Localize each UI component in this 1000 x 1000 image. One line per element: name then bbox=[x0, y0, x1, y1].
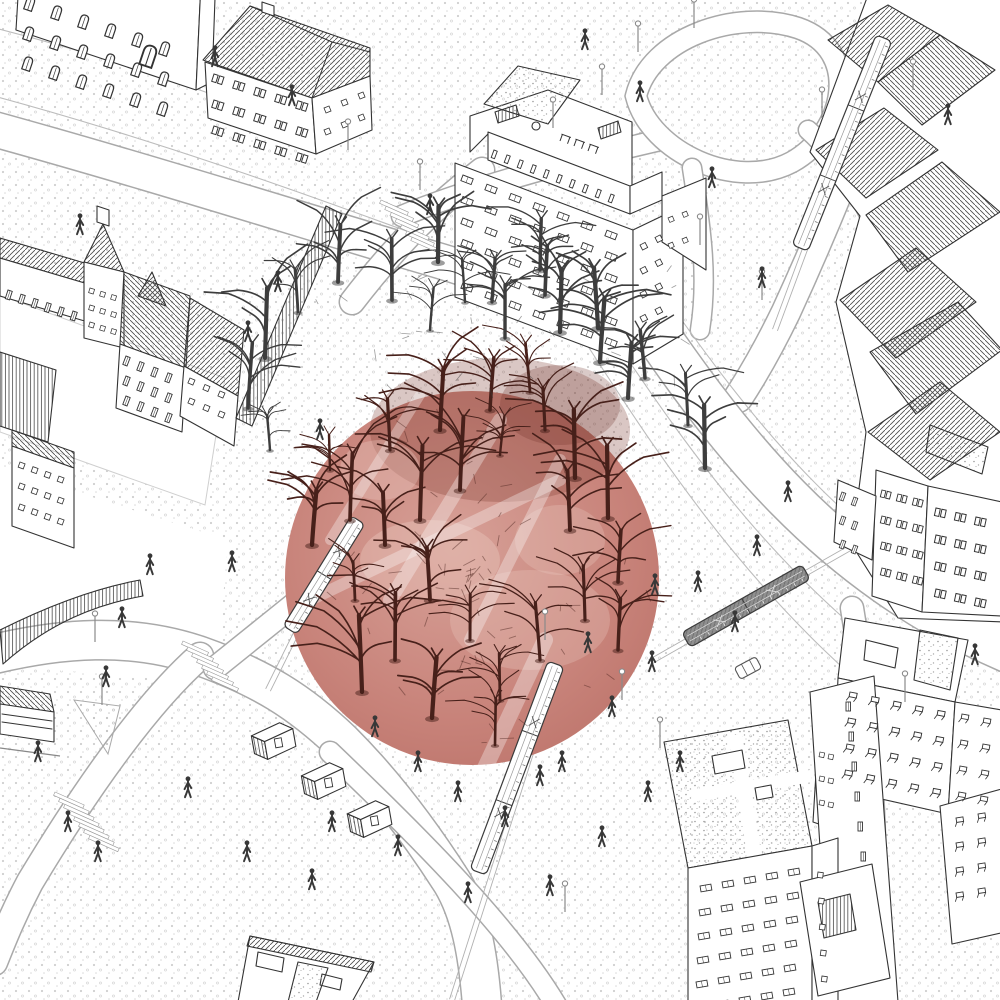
window bbox=[861, 852, 866, 861]
window bbox=[828, 802, 834, 808]
window bbox=[718, 976, 730, 984]
window bbox=[31, 467, 38, 474]
window bbox=[821, 976, 827, 982]
window bbox=[787, 892, 799, 900]
window bbox=[785, 940, 797, 948]
window bbox=[765, 896, 777, 904]
window bbox=[111, 312, 117, 318]
window bbox=[57, 497, 64, 504]
city-illustration: Hand-drawn axonometric city illustration… bbox=[0, 0, 1000, 1000]
window bbox=[819, 752, 825, 758]
window bbox=[742, 924, 754, 932]
window bbox=[743, 900, 755, 908]
window bbox=[111, 295, 117, 301]
window bbox=[697, 956, 709, 964]
window bbox=[819, 924, 825, 930]
window bbox=[699, 908, 711, 916]
window bbox=[744, 876, 756, 884]
window bbox=[57, 518, 64, 525]
window bbox=[722, 880, 734, 888]
window bbox=[696, 980, 708, 988]
window bbox=[720, 928, 732, 936]
window bbox=[31, 488, 38, 495]
window bbox=[820, 950, 826, 956]
window bbox=[764, 920, 776, 928]
window bbox=[828, 754, 834, 760]
window bbox=[18, 504, 25, 511]
window bbox=[763, 944, 775, 952]
window bbox=[31, 509, 38, 516]
window bbox=[783, 988, 795, 996]
window bbox=[57, 476, 64, 483]
window bbox=[762, 968, 774, 976]
window bbox=[100, 325, 106, 331]
window bbox=[784, 964, 796, 972]
window bbox=[788, 868, 800, 876]
window bbox=[700, 884, 712, 892]
window bbox=[89, 322, 95, 328]
window bbox=[846, 702, 851, 711]
window bbox=[18, 483, 25, 490]
window bbox=[18, 462, 25, 469]
window bbox=[89, 288, 95, 294]
window bbox=[44, 513, 51, 520]
window bbox=[858, 822, 863, 831]
window bbox=[819, 776, 825, 782]
window bbox=[828, 778, 834, 784]
window bbox=[740, 972, 752, 980]
window bbox=[698, 932, 710, 940]
window bbox=[111, 329, 117, 335]
window bbox=[817, 872, 823, 878]
window bbox=[44, 471, 51, 478]
window bbox=[852, 762, 857, 771]
window bbox=[786, 916, 798, 924]
window bbox=[721, 904, 733, 912]
window bbox=[89, 305, 95, 311]
window bbox=[855, 792, 860, 801]
window bbox=[761, 992, 773, 1000]
window bbox=[818, 898, 824, 904]
window bbox=[766, 872, 778, 880]
window bbox=[819, 800, 825, 806]
window bbox=[100, 291, 106, 297]
window bbox=[100, 308, 106, 314]
window bbox=[849, 732, 854, 741]
window bbox=[741, 948, 753, 956]
roof-vent bbox=[532, 122, 540, 130]
window bbox=[44, 492, 51, 499]
window bbox=[719, 952, 731, 960]
